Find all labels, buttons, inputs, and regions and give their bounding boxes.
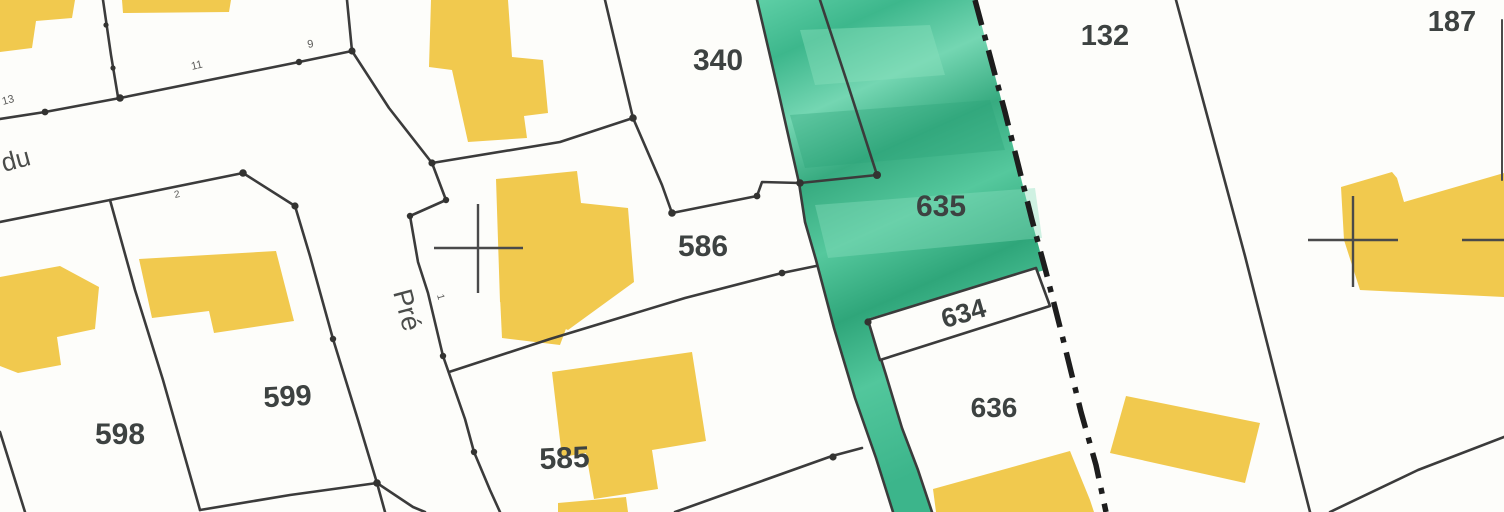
green-texture-patch xyxy=(800,25,945,85)
parcel-label-187: 187 xyxy=(1428,6,1476,38)
map-svg: 340 586 635 634 636 132 187 598 599 585 … xyxy=(0,0,1504,512)
parcel-label-598: 598 xyxy=(95,418,145,451)
parcel-label-585: 585 xyxy=(539,441,591,477)
parcel-label-586: 586 xyxy=(678,230,728,263)
cadastral-map-canvas[interactable]: 340 586 635 634 636 132 187 598 599 585 … xyxy=(0,0,1504,512)
building-footprint xyxy=(122,0,231,13)
parcel-label-635: 635 xyxy=(916,190,966,223)
parcel-label-636: 636 xyxy=(971,392,1018,423)
parcel-label-340: 340 xyxy=(693,44,743,77)
parcel-label-599: 599 xyxy=(263,380,313,414)
parcel-label-132: 132 xyxy=(1081,20,1129,52)
